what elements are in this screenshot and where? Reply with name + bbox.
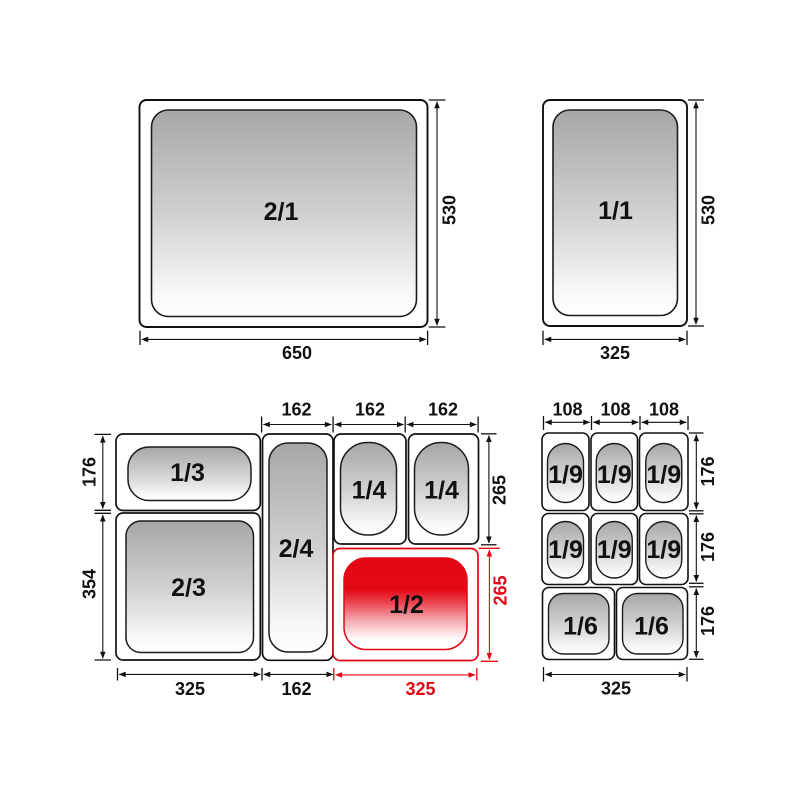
svg-text:530: 530 <box>699 195 719 225</box>
svg-text:530: 530 <box>440 195 460 225</box>
svg-text:176: 176 <box>698 606 718 636</box>
svg-text:162: 162 <box>428 400 458 420</box>
svg-text:1/1: 1/1 <box>598 197 633 225</box>
svg-text:176: 176 <box>698 456 718 486</box>
svg-text:1/2: 1/2 <box>389 591 424 619</box>
svg-text:108: 108 <box>649 400 679 420</box>
svg-text:325: 325 <box>600 343 630 363</box>
svg-text:1/9: 1/9 <box>646 536 681 564</box>
svg-text:2/3: 2/3 <box>171 574 206 602</box>
svg-text:650: 650 <box>282 343 312 363</box>
svg-text:162: 162 <box>281 679 311 699</box>
svg-text:1/9: 1/9 <box>548 536 583 564</box>
svg-text:1/9: 1/9 <box>597 461 632 489</box>
svg-text:1/9: 1/9 <box>597 536 632 564</box>
svg-text:354: 354 <box>80 569 100 599</box>
svg-text:108: 108 <box>552 400 582 420</box>
svg-text:1/6: 1/6 <box>563 613 598 641</box>
svg-text:325: 325 <box>601 679 631 699</box>
svg-text:265: 265 <box>491 575 511 605</box>
svg-text:325: 325 <box>405 679 435 699</box>
svg-text:176: 176 <box>698 532 718 562</box>
svg-text:1/9: 1/9 <box>548 461 583 489</box>
svg-text:1/9: 1/9 <box>646 461 681 489</box>
svg-text:1/6: 1/6 <box>634 613 669 641</box>
svg-text:162: 162 <box>355 400 385 420</box>
svg-text:1/3: 1/3 <box>170 459 205 487</box>
svg-text:108: 108 <box>600 400 630 420</box>
svg-text:162: 162 <box>281 400 311 420</box>
svg-text:2/4: 2/4 <box>279 535 314 563</box>
svg-text:2/1: 2/1 <box>264 198 299 226</box>
svg-text:265: 265 <box>490 475 510 505</box>
svg-text:1/4: 1/4 <box>352 477 387 505</box>
svg-text:325: 325 <box>175 679 205 699</box>
svg-text:1/4: 1/4 <box>424 477 459 505</box>
svg-text:176: 176 <box>80 457 100 487</box>
